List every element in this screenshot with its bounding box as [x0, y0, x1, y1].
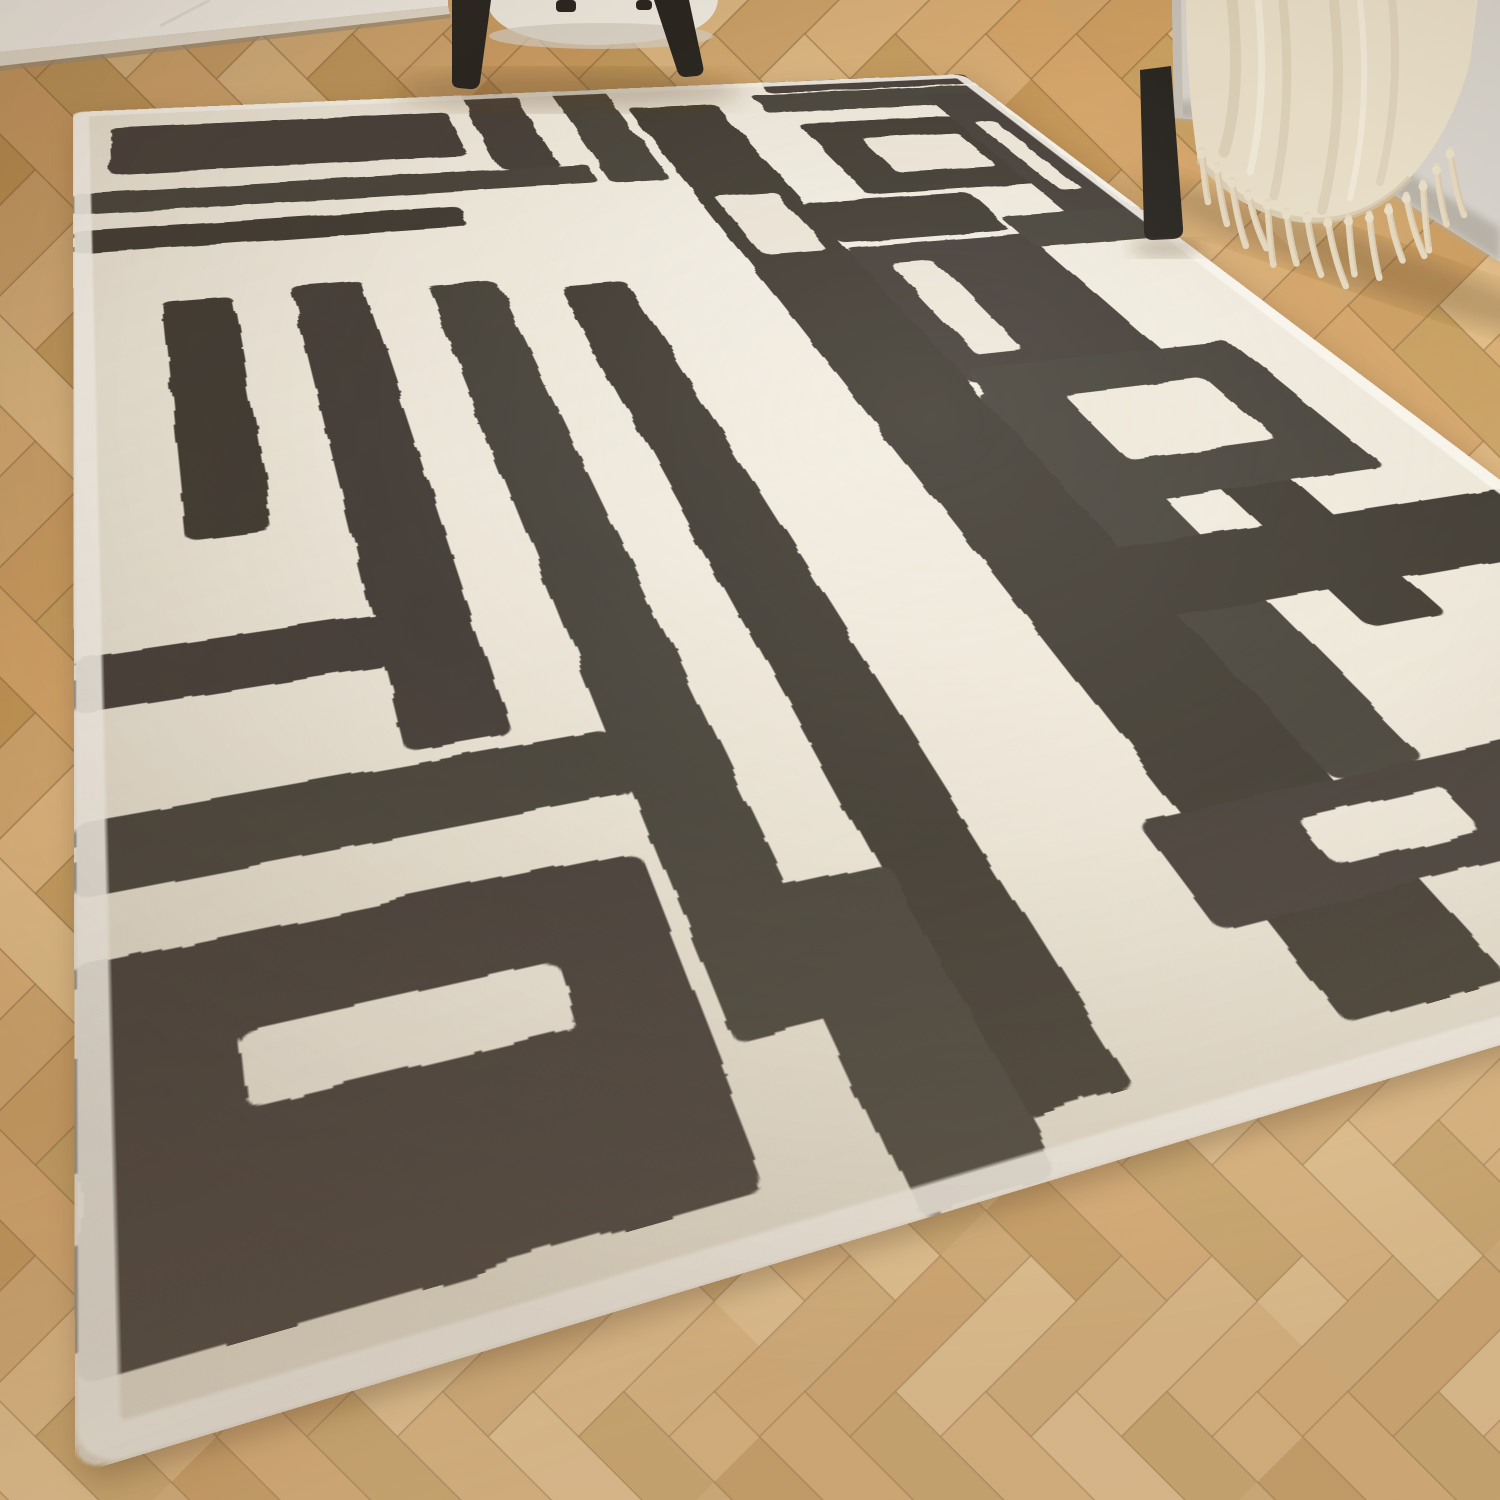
tassel-knot — [1212, 164, 1221, 173]
chair-frame-left-nub — [556, 0, 576, 12]
throw-blanket — [1186, 0, 1478, 286]
chair-frame-right-nub — [636, 0, 652, 10]
tassel-knot — [1244, 192, 1253, 201]
tassel-knot — [1419, 182, 1428, 191]
tassel-knot — [1198, 150, 1207, 159]
tassel-knot — [1402, 194, 1411, 203]
living-room-scene — [0, 0, 1500, 1500]
tassel-knot — [1282, 210, 1291, 219]
tassel-knot — [1344, 217, 1353, 226]
tassel-knot — [1227, 179, 1236, 188]
tassel-knot — [1446, 150, 1455, 159]
tassel-knot — [1303, 214, 1312, 223]
tassel-knot — [1263, 201, 1272, 210]
sofa-leg-shadow — [1130, 239, 1202, 257]
armchair — [393, 0, 743, 110]
tassel-knot — [1384, 206, 1393, 215]
tassel-knot — [1323, 219, 1332, 228]
furniture — [0, 0, 1500, 1500]
tassel-knot — [1365, 213, 1374, 222]
tassel-knot — [1432, 166, 1441, 175]
